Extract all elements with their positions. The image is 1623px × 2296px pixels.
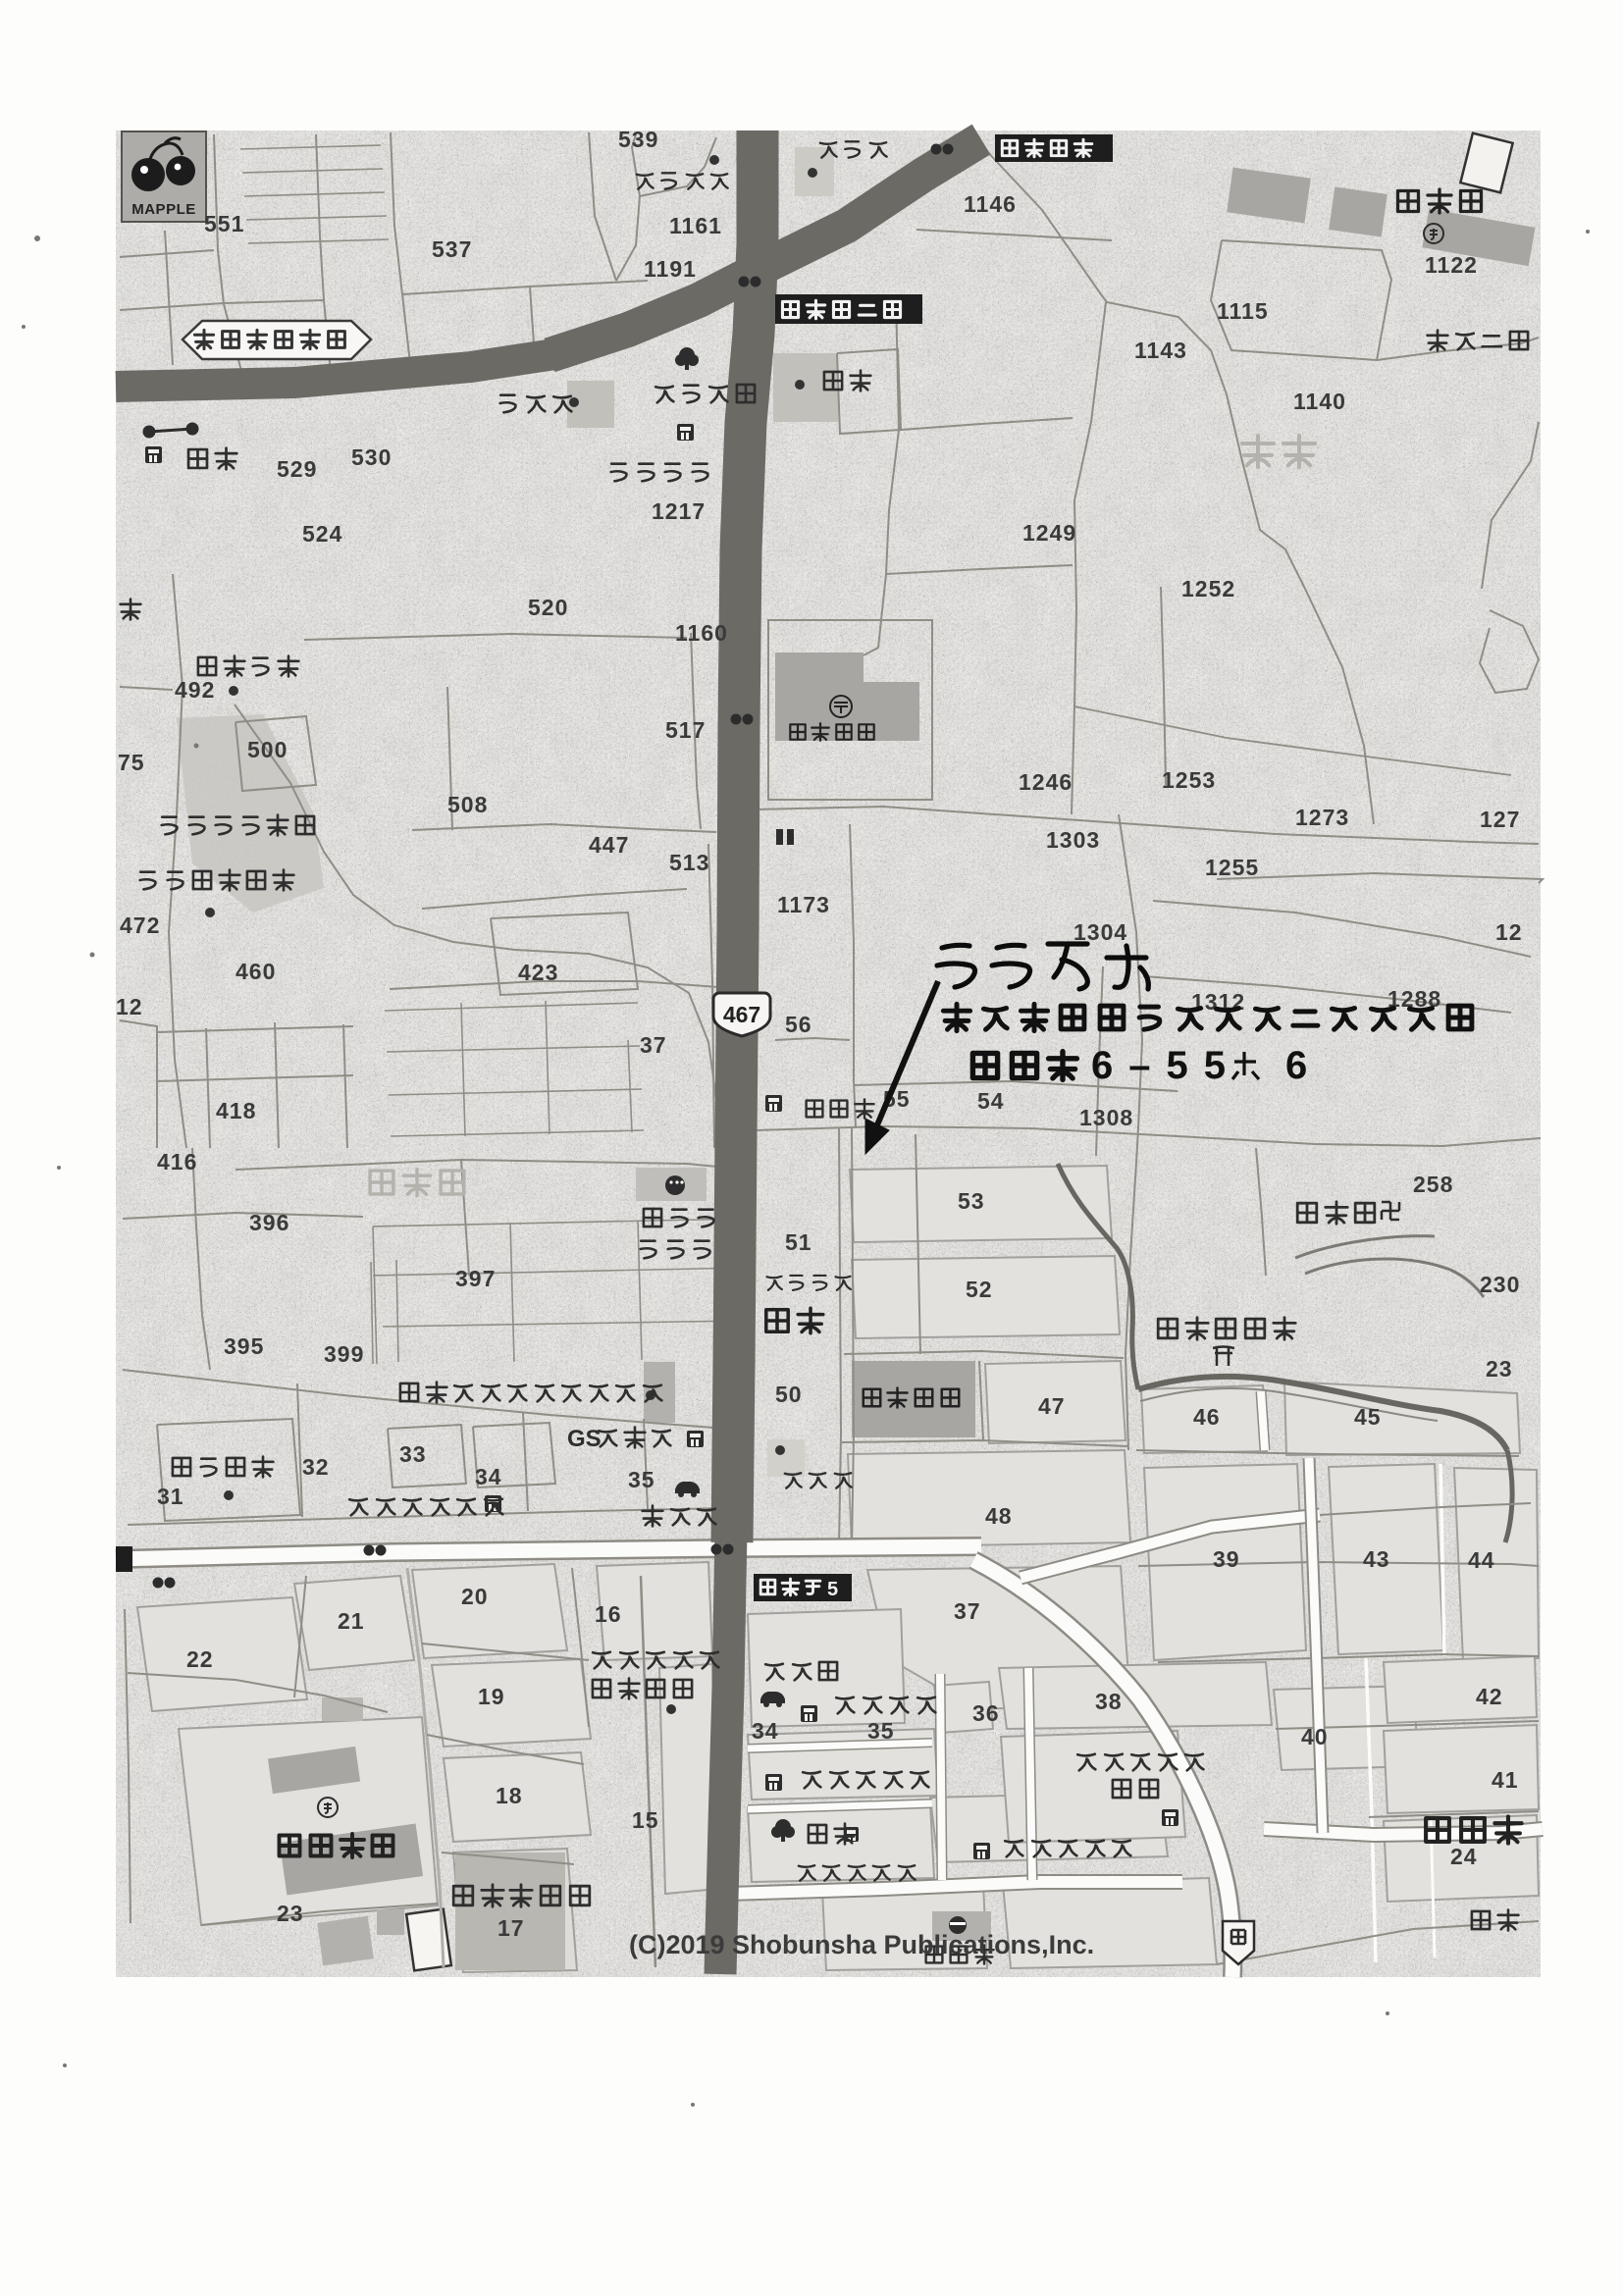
- svg-text:44: 44: [1468, 1547, 1495, 1573]
- svg-text:39: 39: [1213, 1546, 1240, 1572]
- svg-text:34: 34: [752, 1718, 779, 1744]
- svg-text:1246: 1246: [1019, 769, 1073, 795]
- svg-text:56: 56: [785, 1012, 812, 1037]
- svg-text:1273: 1273: [1295, 805, 1349, 830]
- svg-text:1161: 1161: [669, 213, 722, 238]
- svg-text:53: 53: [958, 1188, 985, 1214]
- svg-text:1160: 1160: [675, 620, 728, 646]
- svg-text:37: 37: [954, 1598, 981, 1624]
- svg-text:513: 513: [669, 850, 709, 875]
- svg-text:1252: 1252: [1181, 576, 1235, 601]
- svg-text:258: 258: [1413, 1172, 1453, 1197]
- svg-text:20: 20: [461, 1584, 489, 1609]
- svg-text:45: 45: [1354, 1404, 1382, 1430]
- svg-text:(C)2019 Shobunsha Publications: (C)2019 Shobunsha Publications,Inc.: [629, 1930, 1094, 1959]
- svg-text:47: 47: [1038, 1393, 1066, 1419]
- svg-text:529: 529: [277, 456, 317, 482]
- svg-text:48: 48: [985, 1503, 1013, 1529]
- svg-text:399: 399: [324, 1341, 364, 1367]
- svg-text:42: 42: [1476, 1684, 1503, 1709]
- svg-text:16: 16: [595, 1601, 622, 1627]
- svg-text:500: 500: [247, 737, 288, 762]
- svg-text:18: 18: [496, 1783, 523, 1808]
- svg-text:397: 397: [455, 1266, 496, 1291]
- svg-text:31: 31: [157, 1484, 184, 1509]
- svg-text:551: 551: [204, 211, 244, 236]
- svg-text:MAPPLE: MAPPLE: [131, 201, 196, 218]
- svg-text:467: 467: [723, 1002, 760, 1027]
- svg-text:1173: 1173: [777, 892, 830, 917]
- svg-text:472: 472: [120, 913, 160, 938]
- svg-text:35: 35: [628, 1467, 655, 1492]
- svg-text:395: 395: [224, 1333, 264, 1359]
- svg-text:6–55: 6–55: [1091, 1044, 1241, 1087]
- svg-text:12: 12: [116, 994, 143, 1019]
- svg-text:52: 52: [966, 1277, 993, 1302]
- svg-text:418: 418: [216, 1098, 256, 1123]
- svg-text:12: 12: [1495, 919, 1523, 945]
- svg-text:447: 447: [589, 832, 629, 858]
- svg-text:6: 6: [1285, 1044, 1307, 1087]
- svg-text:35: 35: [867, 1718, 895, 1744]
- svg-text:517: 517: [665, 717, 706, 743]
- svg-text:1253: 1253: [1162, 767, 1216, 793]
- svg-text:508: 508: [447, 792, 488, 817]
- svg-text:41: 41: [1492, 1767, 1519, 1793]
- svg-text:32: 32: [302, 1454, 330, 1480]
- svg-text:23: 23: [277, 1901, 304, 1926]
- svg-text:15: 15: [632, 1807, 659, 1833]
- svg-text:19: 19: [478, 1684, 505, 1709]
- svg-text:520: 520: [528, 595, 568, 620]
- svg-text:1249: 1249: [1022, 520, 1076, 546]
- svg-text:75: 75: [118, 750, 145, 775]
- svg-text:396: 396: [249, 1210, 289, 1235]
- svg-text:1143: 1143: [1134, 338, 1187, 363]
- svg-text:22: 22: [186, 1646, 214, 1672]
- svg-text:423: 423: [518, 960, 558, 985]
- svg-text:1115: 1115: [1217, 298, 1269, 324]
- svg-text:1255: 1255: [1205, 855, 1259, 880]
- svg-text:537: 537: [432, 236, 472, 262]
- svg-text:1122: 1122: [1425, 252, 1478, 278]
- svg-text:34: 34: [475, 1464, 502, 1489]
- svg-text:GS: GS: [567, 1426, 602, 1452]
- svg-text:43: 43: [1363, 1546, 1390, 1572]
- svg-text:1140: 1140: [1293, 389, 1346, 414]
- svg-text:51: 51: [785, 1229, 812, 1255]
- svg-text:524: 524: [302, 521, 342, 547]
- svg-text:17: 17: [497, 1915, 525, 1941]
- svg-text:530: 530: [351, 444, 392, 470]
- svg-text:127: 127: [1480, 807, 1520, 832]
- svg-text:1146: 1146: [964, 191, 1017, 217]
- svg-text:40: 40: [1301, 1724, 1329, 1749]
- svg-text:416: 416: [157, 1149, 197, 1174]
- svg-text:50: 50: [775, 1382, 803, 1407]
- svg-text:46: 46: [1193, 1404, 1221, 1430]
- svg-text:54: 54: [977, 1088, 1005, 1114]
- svg-text:1191: 1191: [644, 256, 697, 282]
- svg-text:36: 36: [972, 1700, 1000, 1726]
- svg-text:460: 460: [236, 959, 276, 984]
- svg-text:33: 33: [399, 1441, 427, 1467]
- svg-text:23: 23: [1486, 1356, 1513, 1382]
- svg-text:539: 539: [618, 127, 658, 152]
- svg-text:1217: 1217: [652, 498, 706, 524]
- svg-text:38: 38: [1095, 1689, 1123, 1714]
- svg-text:492: 492: [175, 677, 215, 703]
- svg-text:21: 21: [338, 1608, 365, 1634]
- svg-text:37: 37: [640, 1032, 667, 1058]
- svg-text:24: 24: [1450, 1844, 1478, 1869]
- svg-text:1304: 1304: [1073, 919, 1127, 945]
- svg-text:1308: 1308: [1079, 1105, 1133, 1130]
- svg-text:1303: 1303: [1046, 827, 1100, 853]
- svg-text:230: 230: [1480, 1272, 1520, 1297]
- svg-text:5: 5: [827, 1579, 838, 1600]
